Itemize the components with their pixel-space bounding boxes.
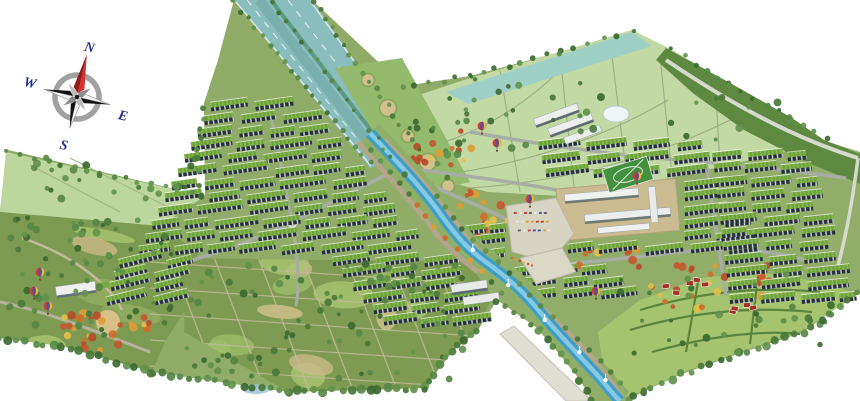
compass-rose: N E S W <box>10 28 142 166</box>
compass-west-label: W <box>22 75 39 93</box>
compass-south-label: S <box>58 138 69 154</box>
compass-north-label: N <box>82 40 97 57</box>
compass-east-label: E <box>116 108 129 125</box>
masterplan-scene: N E S W <box>0 0 860 401</box>
pond <box>603 106 629 122</box>
masterplan-image: N E S W <box>0 0 860 401</box>
